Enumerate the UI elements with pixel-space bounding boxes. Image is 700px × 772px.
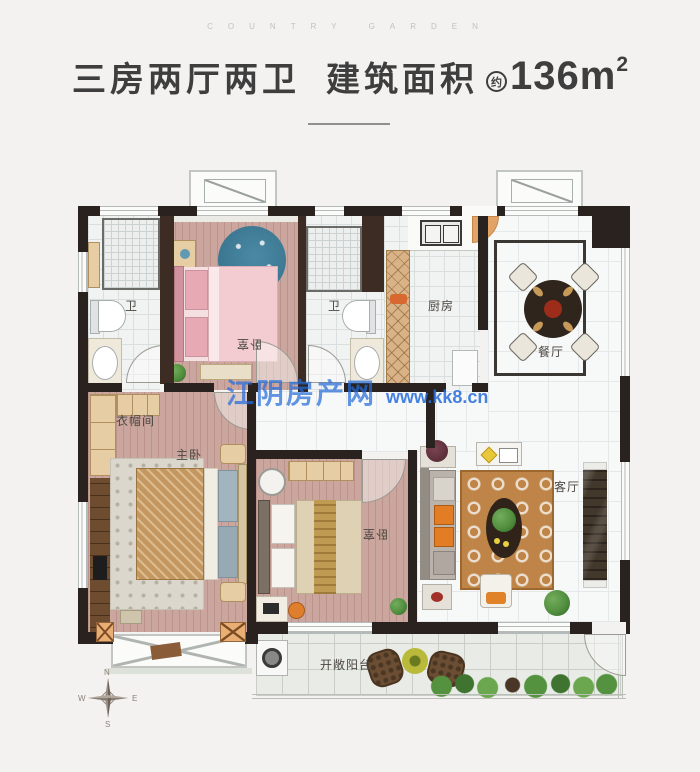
desk-chair [288, 602, 305, 619]
sofa-cushion [433, 477, 455, 501]
wall-segment [160, 216, 174, 384]
window [498, 622, 570, 634]
shelf-cabinet [288, 461, 354, 481]
pantry-shelf [386, 250, 410, 388]
shower-area [102, 218, 160, 290]
wall-segment [164, 383, 214, 392]
room-label-bedroom-top: 卧室 [236, 336, 262, 353]
wall-jamb [626, 622, 630, 634]
sofa-cushion-orange [434, 505, 454, 525]
wall-segment [372, 622, 412, 634]
wall-segment [478, 216, 488, 330]
pillow [218, 470, 238, 522]
compass-star-icon [88, 678, 128, 718]
room-label-bath-left: 卫 [125, 297, 138, 314]
room-label-bath-mid: 卫 [328, 297, 341, 314]
watermark-site-url: www.kk8.cn [386, 387, 488, 408]
picture-frame-icon [499, 448, 518, 463]
duct-shaft [362, 216, 384, 292]
sink-basin-icon [92, 346, 118, 380]
wall-segment [298, 216, 306, 384]
wall-segment [256, 450, 362, 459]
master-bed-headboard [238, 464, 247, 584]
compass-east-label: E [132, 694, 137, 703]
compass-south-label: S [105, 720, 110, 729]
sink-bowl [443, 225, 459, 243]
structural-column [220, 622, 246, 642]
lemon-icon [503, 541, 509, 547]
entry-opening [462, 206, 497, 216]
bath-shelf [88, 242, 100, 288]
nightstand [220, 444, 246, 464]
toilet-icon [342, 300, 370, 332]
wall-segment [78, 588, 88, 644]
table-centerpiece [544, 300, 562, 318]
washer-drum [262, 648, 282, 668]
window [78, 252, 88, 292]
balcony-parapet [252, 694, 626, 700]
balcony-table-plant [402, 648, 428, 674]
wall-segment [256, 622, 288, 634]
laptop-icon [263, 603, 279, 614]
wall-segment [570, 622, 592, 634]
round-table [258, 468, 286, 496]
ac-unit-icon [511, 179, 573, 203]
wall-segment [268, 206, 315, 216]
wall-segment [412, 622, 498, 634]
room-label-master: 主卧 [176, 446, 202, 463]
master-bed-sheet [204, 468, 218, 580]
room-label-living: 客厅 [554, 478, 580, 495]
decor-icon [481, 447, 498, 464]
bed-headboard [258, 500, 270, 594]
window [78, 502, 88, 588]
wall-segment [78, 292, 88, 502]
window [621, 248, 630, 376]
tv-wall-ledge [583, 462, 607, 470]
armchair-cushion [486, 592, 506, 604]
wall-segment [88, 383, 122, 392]
sofa-back [420, 468, 429, 580]
curtain-strip [170, 216, 298, 222]
tv-wall [583, 470, 607, 580]
window [288, 622, 372, 634]
pillow [185, 317, 208, 357]
wall-segment [247, 392, 256, 632]
console-table [476, 442, 522, 466]
nightstand [220, 582, 246, 602]
sofa-cushion-orange [434, 527, 454, 547]
shower-area [306, 226, 362, 292]
sink-bowl [425, 225, 441, 243]
bed-runner [314, 500, 336, 594]
wall-segment [78, 206, 88, 252]
plant-icon [544, 590, 570, 616]
wall-segment [497, 206, 505, 216]
structural-column [96, 622, 114, 642]
lemon-icon [494, 538, 500, 544]
window [621, 462, 630, 560]
tv-wall-ledge [583, 580, 607, 588]
watermark: 江阴房产网 www.kk8.cn [226, 372, 488, 412]
wall-segment [158, 206, 197, 216]
flower-icon [431, 592, 443, 602]
pillow [218, 526, 238, 578]
place-setting [531, 320, 544, 333]
bed-headboard [174, 266, 184, 362]
kitchen-item [390, 294, 407, 304]
pillow [271, 504, 295, 544]
bench [120, 610, 142, 624]
double-sink-icon [420, 220, 462, 246]
room-label-dining: 餐厅 [538, 343, 564, 360]
bed-pillow-zone [184, 267, 208, 361]
desk [256, 596, 288, 622]
wall-segment [620, 206, 630, 248]
coffee-table [486, 498, 522, 558]
sofa-cushion [433, 551, 455, 575]
room-label-bedroom-right: 卧室 [362, 526, 388, 543]
room-label-kitchen: 厨房 [428, 297, 454, 314]
window [100, 206, 158, 216]
bay-window-decor [150, 642, 182, 660]
window [505, 206, 578, 216]
ac-unit-icon [204, 179, 266, 203]
window [315, 206, 344, 216]
tv-icon [93, 556, 107, 580]
compass-icon: N W E S [78, 668, 138, 730]
compass-west-label: W [78, 694, 86, 703]
room-label-cloakroom: 衣帽间 [116, 412, 155, 429]
place-setting [561, 285, 574, 298]
wall-segment [620, 376, 630, 462]
window [402, 206, 450, 216]
side-table [422, 584, 452, 610]
basin-icon [180, 249, 190, 259]
wall-segment [344, 206, 402, 216]
master-bed-duvet [136, 468, 204, 580]
dining-table [524, 280, 582, 338]
armchair [480, 574, 512, 608]
wall-segment [408, 450, 417, 622]
pillow [271, 548, 295, 588]
window [197, 206, 268, 216]
watermark-site-name: 江阴房产网 [226, 372, 376, 412]
wall-segment [450, 206, 462, 216]
pillow [185, 270, 208, 310]
washing-machine-icon [256, 640, 288, 676]
dresser [172, 240, 196, 268]
plant-icon [390, 598, 407, 615]
wall-segment [620, 560, 630, 622]
place-setting [531, 285, 544, 298]
room-label-balcony: 开敞阳台 [320, 656, 372, 673]
compass-north-label: N [104, 668, 110, 677]
sofa-seat [429, 470, 456, 580]
table-plant-icon [492, 508, 516, 532]
